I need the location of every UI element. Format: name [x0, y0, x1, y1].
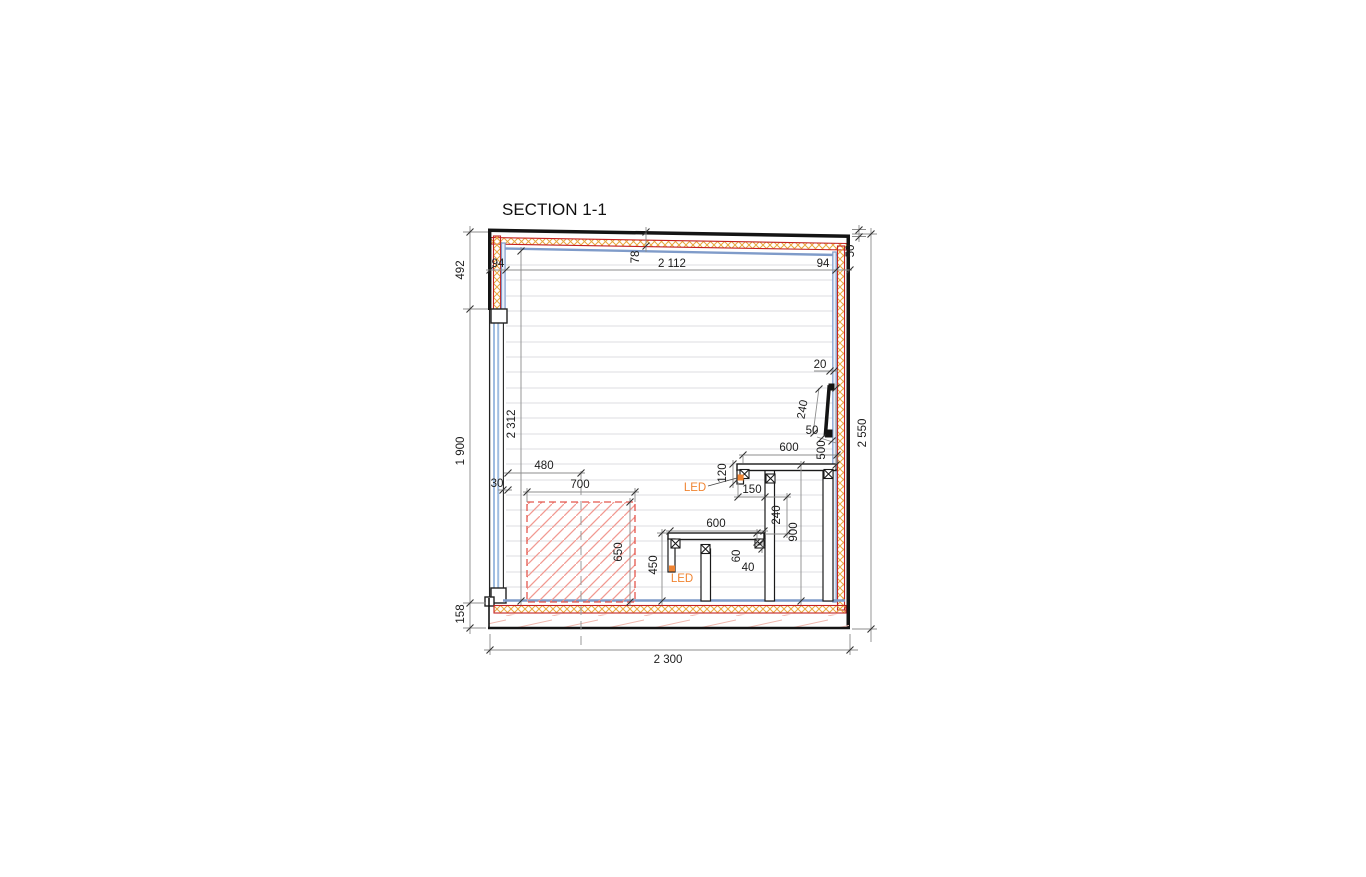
dim-left-top: 492 [455, 260, 467, 279]
dim-backrest-gap-bottom: 50 [806, 425, 819, 437]
dim-bench-level-gap: 240 [771, 505, 783, 524]
upper-bench-top-board [737, 464, 836, 471]
dim-wall-left: 94 [492, 258, 505, 270]
door-header-block [491, 309, 507, 323]
dim-door-height: 1 900 [455, 437, 467, 466]
dim-backrest-gap-top: 20 [814, 359, 827, 371]
right-wall-insulation [838, 246, 845, 610]
dim-total-width: 2 300 [654, 654, 683, 666]
right-wall-outer-skin [847, 237, 851, 628]
left-wall [488, 231, 505, 310]
dim-heater-height: 650 [613, 542, 625, 561]
dim-roof-edge: 50 [845, 245, 857, 258]
dim-bench-overhang: 150 [742, 484, 761, 496]
dim-door-gap: 30 [491, 478, 504, 490]
dim-roof-thickness: 78 [630, 251, 642, 264]
dim-interior-width: 2 112 [658, 258, 686, 270]
dim-heater-center: 480 [534, 460, 553, 472]
lower-bench-led-strip [669, 566, 675, 572]
dim-bench-lower-width: 600 [706, 518, 725, 530]
floor-structure [489, 615, 849, 628]
dim-bench-upper-height: 900 [788, 522, 800, 541]
right-wall [833, 237, 850, 628]
upper-led-label: LED [684, 482, 706, 494]
backrest-top-mount [829, 384, 835, 391]
dim-bench-upper-thickness: 120 [717, 463, 729, 482]
left-wall-insulation [494, 236, 501, 310]
dim-total-height: 2 550 [857, 419, 869, 448]
dim-heater-width: 700 [570, 479, 589, 491]
drawing-title: SECTION 1-1 [502, 200, 607, 219]
lower-bench-top-board [668, 533, 764, 540]
dim-interior-height: 2 312 [506, 410, 518, 439]
upper-bench-right-post [823, 470, 833, 601]
dim-bench-board: 60 [731, 550, 743, 563]
dim-backrest-above-bench: 500 [816, 440, 828, 459]
section-drawing-canvas: SECTION 1-1 [0, 0, 1366, 877]
dim-floor-thickness: 158 [455, 604, 467, 623]
upper-bench-led-strip [738, 475, 744, 481]
page-background [0, 0, 1366, 877]
dim-bench-frame: 40 [742, 562, 755, 574]
left-wall-inner-lining [502, 243, 506, 310]
lower-bench-leg [701, 549, 711, 601]
upper-bench-left-post [765, 470, 775, 601]
dim-bench-upper-width: 600 [779, 442, 798, 454]
backrest-bottom-mount [825, 430, 833, 438]
dim-wall-right: 94 [817, 258, 830, 270]
lower-led-label: LED [671, 573, 693, 585]
floor-insulation [494, 606, 846, 614]
dim-bench-lower-height: 450 [648, 555, 660, 574]
